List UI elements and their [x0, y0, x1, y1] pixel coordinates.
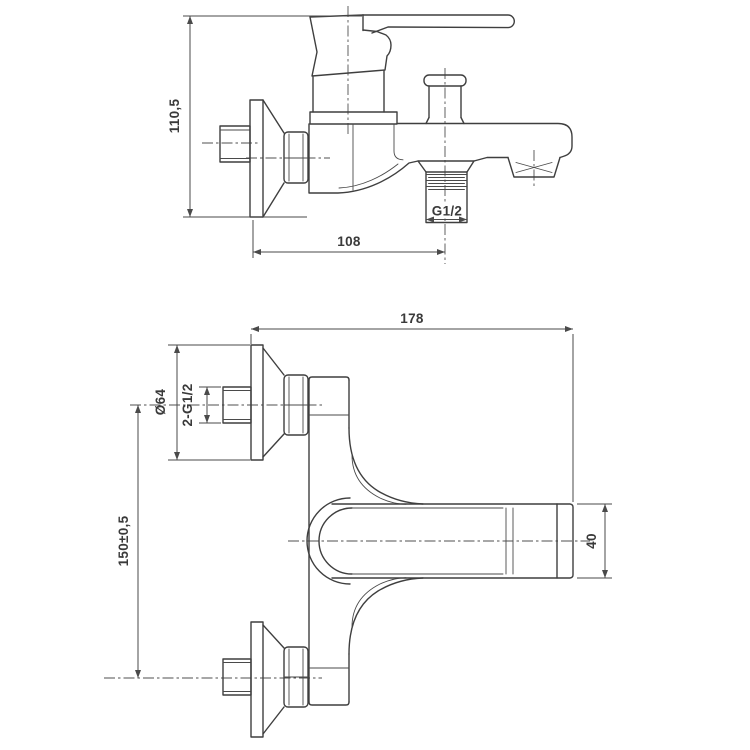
wall-union-lower: [223, 622, 308, 737]
wall-union-side: [220, 100, 308, 217]
technical-drawing-page: G1/2 110,5 108: [0, 0, 750, 750]
dim-spout-height-label: 40: [584, 533, 599, 549]
wall-union-upper: [223, 345, 308, 460]
dim-flange-diameter: Ø64: [153, 345, 250, 460]
dim-spout-reach: 108: [253, 220, 445, 258]
side-view-centerlines: [202, 6, 534, 264]
technical-drawing: G1/2 110,5 108: [0, 0, 750, 750]
dim-connection-thread-label: 2-G1/2: [180, 383, 195, 426]
thread-size-label: G1/2: [432, 204, 462, 219]
dim-spout-reach-label: 108: [337, 234, 361, 249]
handle-side: [310, 15, 514, 76]
cartridge-side: [310, 71, 397, 124]
dim-connection-spacing: 150±0,5: [116, 405, 138, 678]
shower-outlet: G1/2: [426, 172, 467, 223]
body-spout-side: [309, 124, 572, 194]
dim-overall-length-label: 178: [400, 311, 424, 326]
dim-connection-spacing-label: 150±0,5: [116, 515, 131, 566]
front-view: 178 Ø64 2-G1/2 150±0,5 40: [104, 311, 612, 737]
side-view: G1/2 110,5 108: [167, 6, 572, 264]
dim-height-label: 110,5: [167, 99, 182, 134]
dim-height: 110,5: [167, 16, 362, 217]
dim-flange-diameter-label: Ø64: [153, 389, 168, 416]
dim-overall-length: 178: [251, 311, 573, 502]
